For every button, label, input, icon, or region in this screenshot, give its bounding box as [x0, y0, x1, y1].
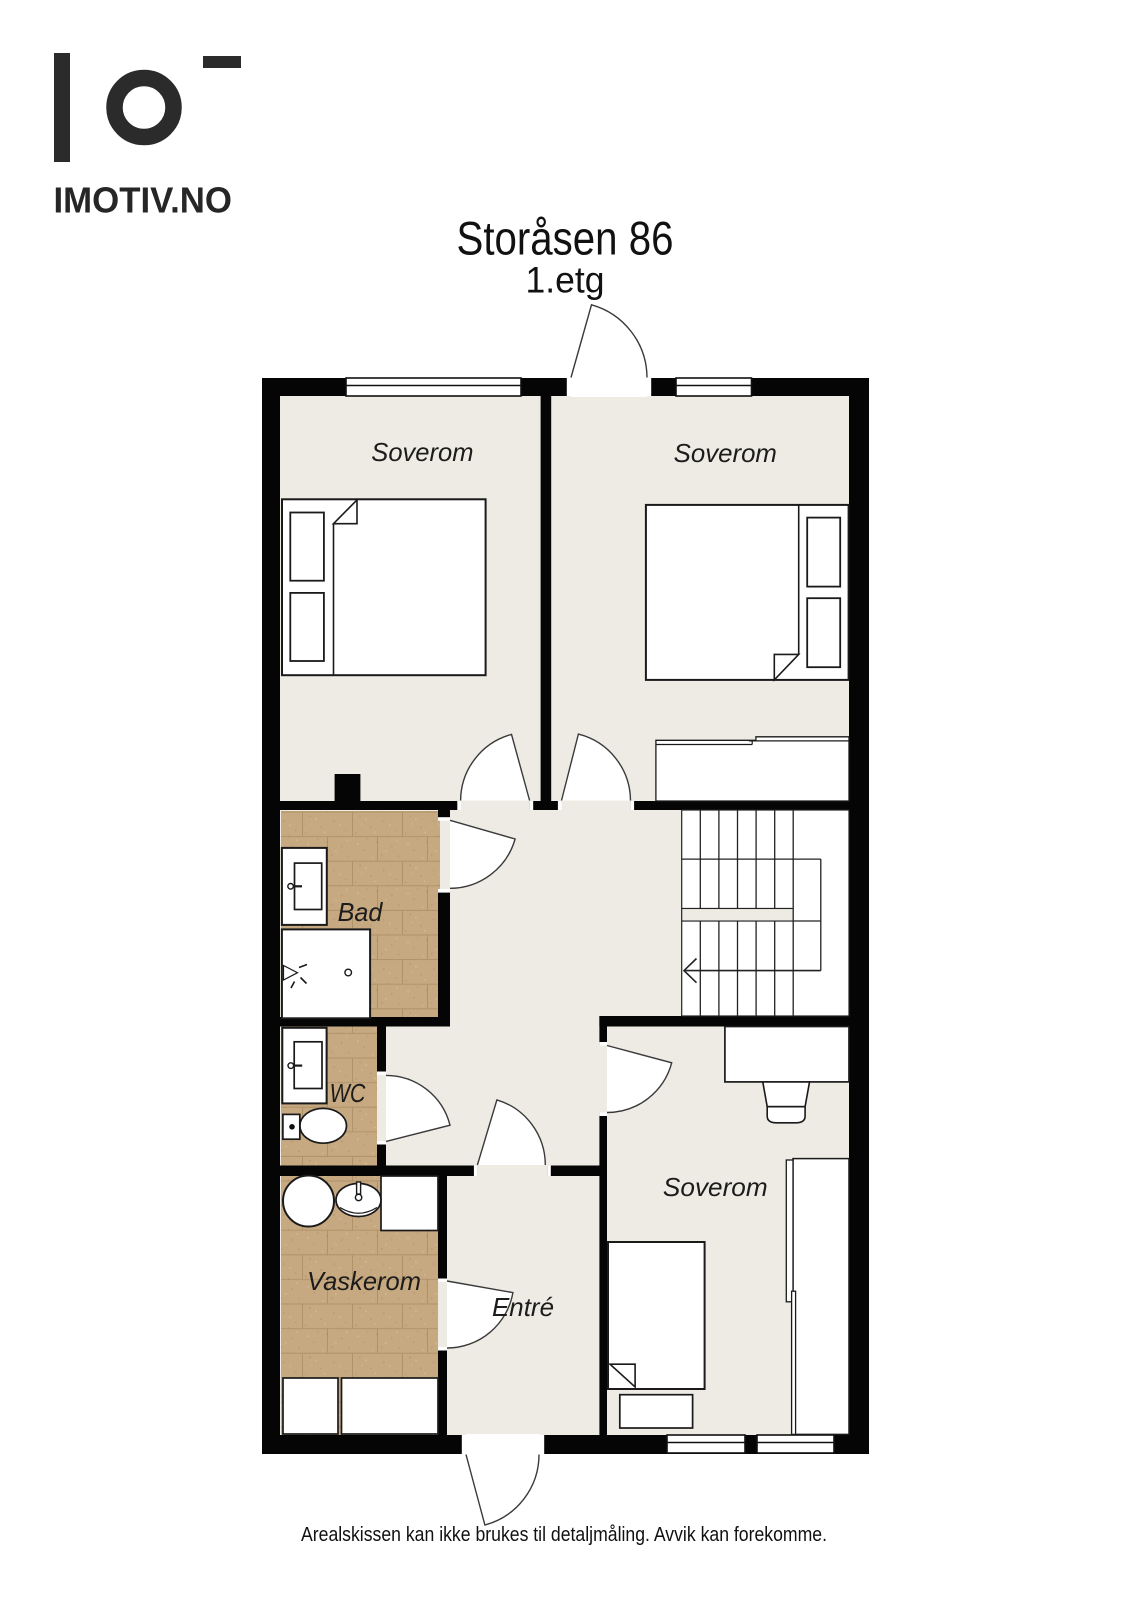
svg-text:Vaskerom: Vaskerom	[307, 1266, 421, 1296]
svg-text:Arealskissen kan ikke brukes t: Arealskissen kan ikke brukes til detaljm…	[301, 1524, 827, 1546]
svg-text:Bad: Bad	[338, 897, 384, 927]
svg-text:IMOTIV.NO: IMOTIV.NO	[54, 180, 233, 221]
svg-text:1.etg: 1.etg	[526, 260, 605, 301]
svg-text:Entré: Entré	[492, 1292, 554, 1322]
svg-text:Soverom: Soverom	[371, 437, 473, 467]
svg-text:Storåsen 86: Storåsen 86	[457, 212, 674, 265]
svg-text:Soverom: Soverom	[674, 438, 777, 468]
svg-text:WC: WC	[330, 1078, 366, 1108]
svg-text:Soverom: Soverom	[663, 1172, 768, 1202]
